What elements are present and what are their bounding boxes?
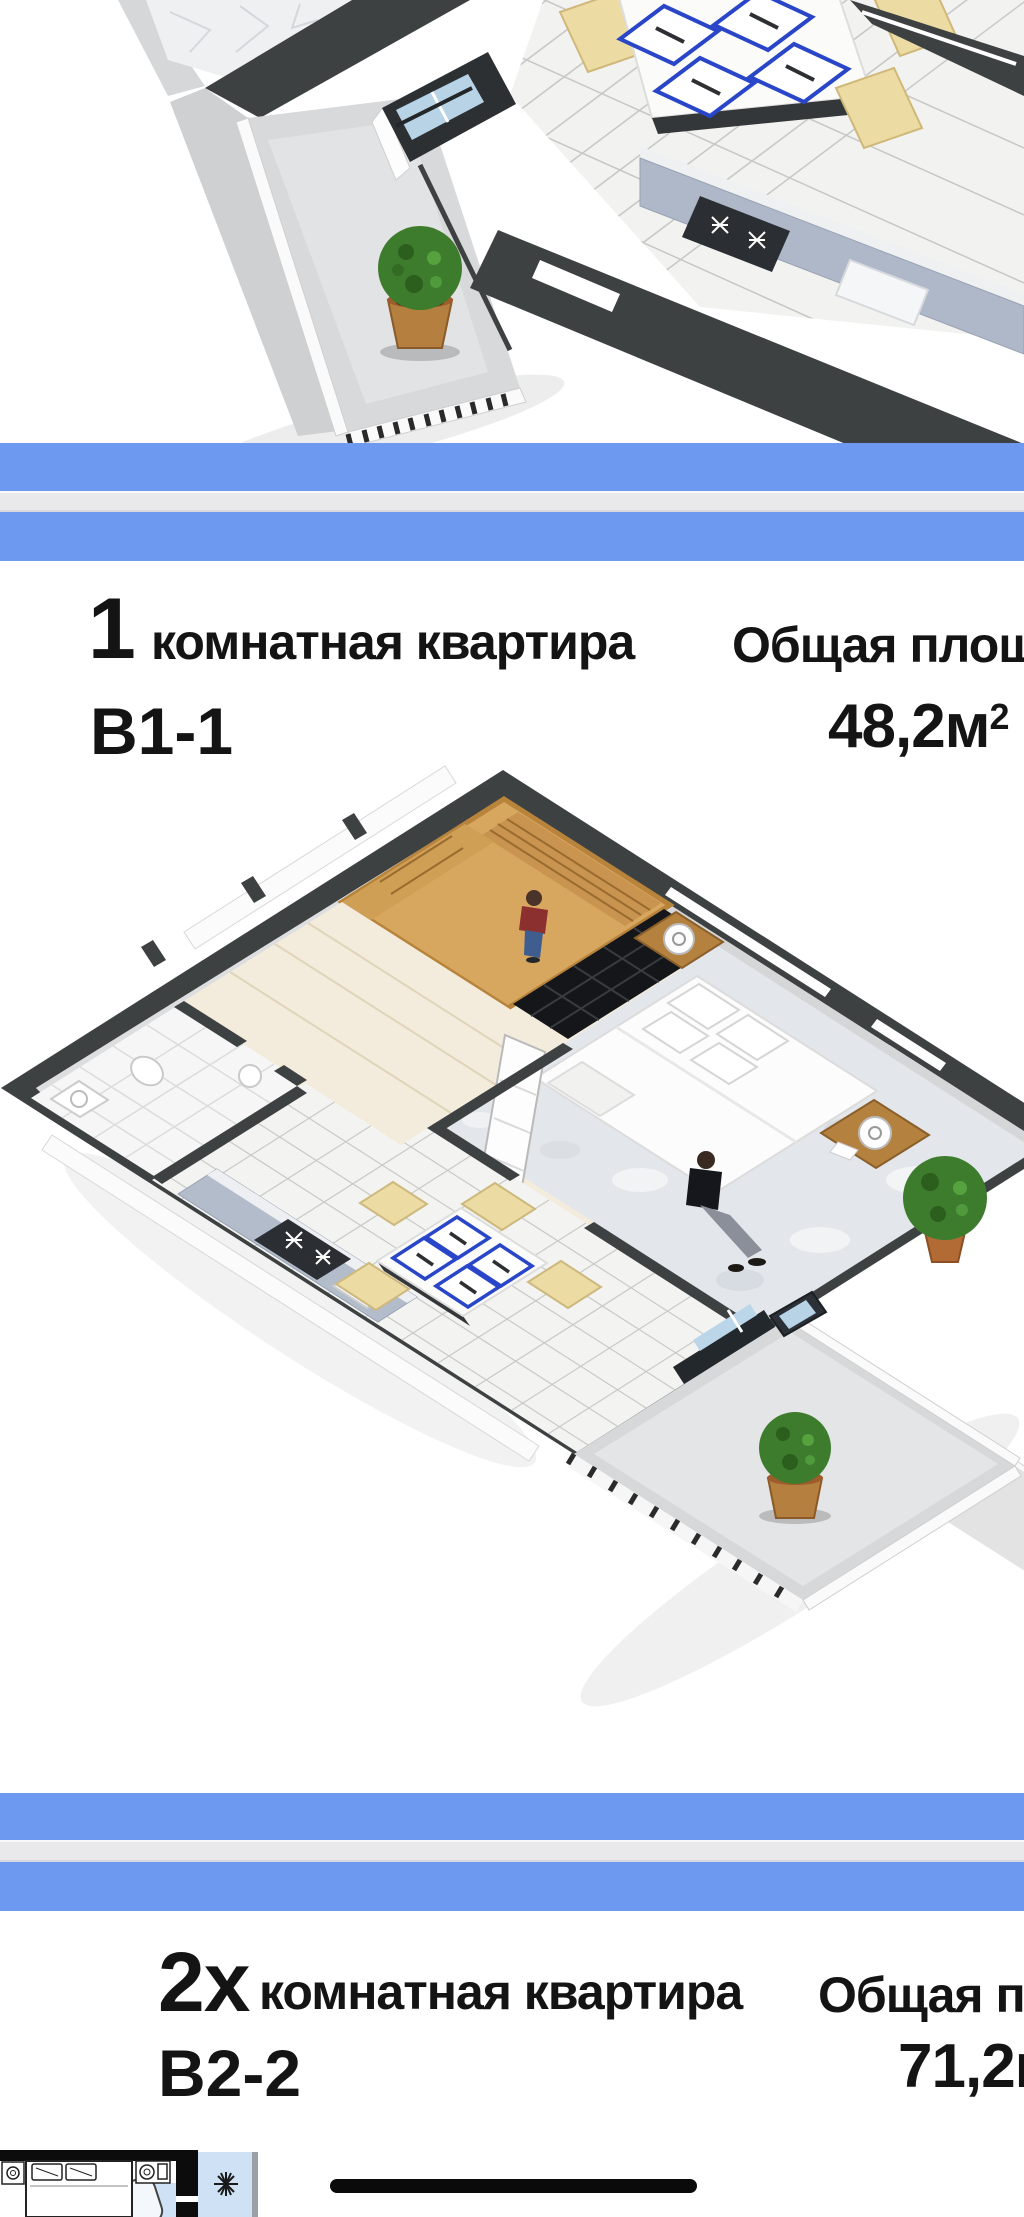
apt2-unit-code: В2-2	[158, 2040, 301, 2106]
separator-line	[330, 2179, 697, 2193]
fixture-2d	[136, 2161, 170, 2183]
main-floorplan-3d	[0, 760, 1024, 1710]
apt2-area-number: 71,2м	[898, 2032, 1024, 2101]
divider-top	[0, 443, 1024, 561]
apt2-area-value: 71,2м2	[898, 2036, 1024, 2098]
apt1-area-label: Общая площадь	[732, 620, 1024, 670]
wall-black	[176, 2150, 198, 2196]
potted-plant-icon	[903, 1156, 987, 1262]
divider-bottom	[0, 1793, 1024, 1911]
apt2-type-label: комнатная квартира	[259, 1967, 742, 2017]
apt2-rooms-number: 2х	[158, 1940, 249, 2024]
apt1-area-value: 48,2м2	[828, 696, 1009, 758]
stripe-blue	[0, 443, 1024, 491]
apt1-rooms-number: 1	[88, 586, 135, 672]
apt1-area-sup: 2	[990, 696, 1009, 737]
wall-black	[176, 2202, 198, 2217]
top-floorplan-3d	[0, 0, 1024, 445]
border-gray	[252, 2152, 258, 2217]
washer-2d	[2, 2162, 24, 2184]
bed-2d	[26, 2161, 132, 2217]
thumbnail-floorplan-2d	[0, 2148, 270, 2217]
stripe-gray	[0, 491, 1024, 512]
apt2-area-label: Общая площадь	[818, 1970, 1024, 2020]
brochure-page: 1 комнатная квартира Общая площадь В1-1 …	[0, 0, 1024, 2217]
apt1-unit-code: В1-1	[90, 698, 233, 764]
apt1-area-number: 48,2м	[828, 692, 990, 761]
wall-black	[0, 2150, 198, 2161]
sink	[239, 1065, 261, 1087]
stripe-blue	[0, 1793, 1024, 1840]
stripe-blue	[0, 512, 1024, 561]
stripe-blue	[0, 1862, 1024, 1911]
apt1-type-label: комнатная квартира	[151, 617, 634, 667]
stripe-gray	[0, 1840, 1024, 1862]
